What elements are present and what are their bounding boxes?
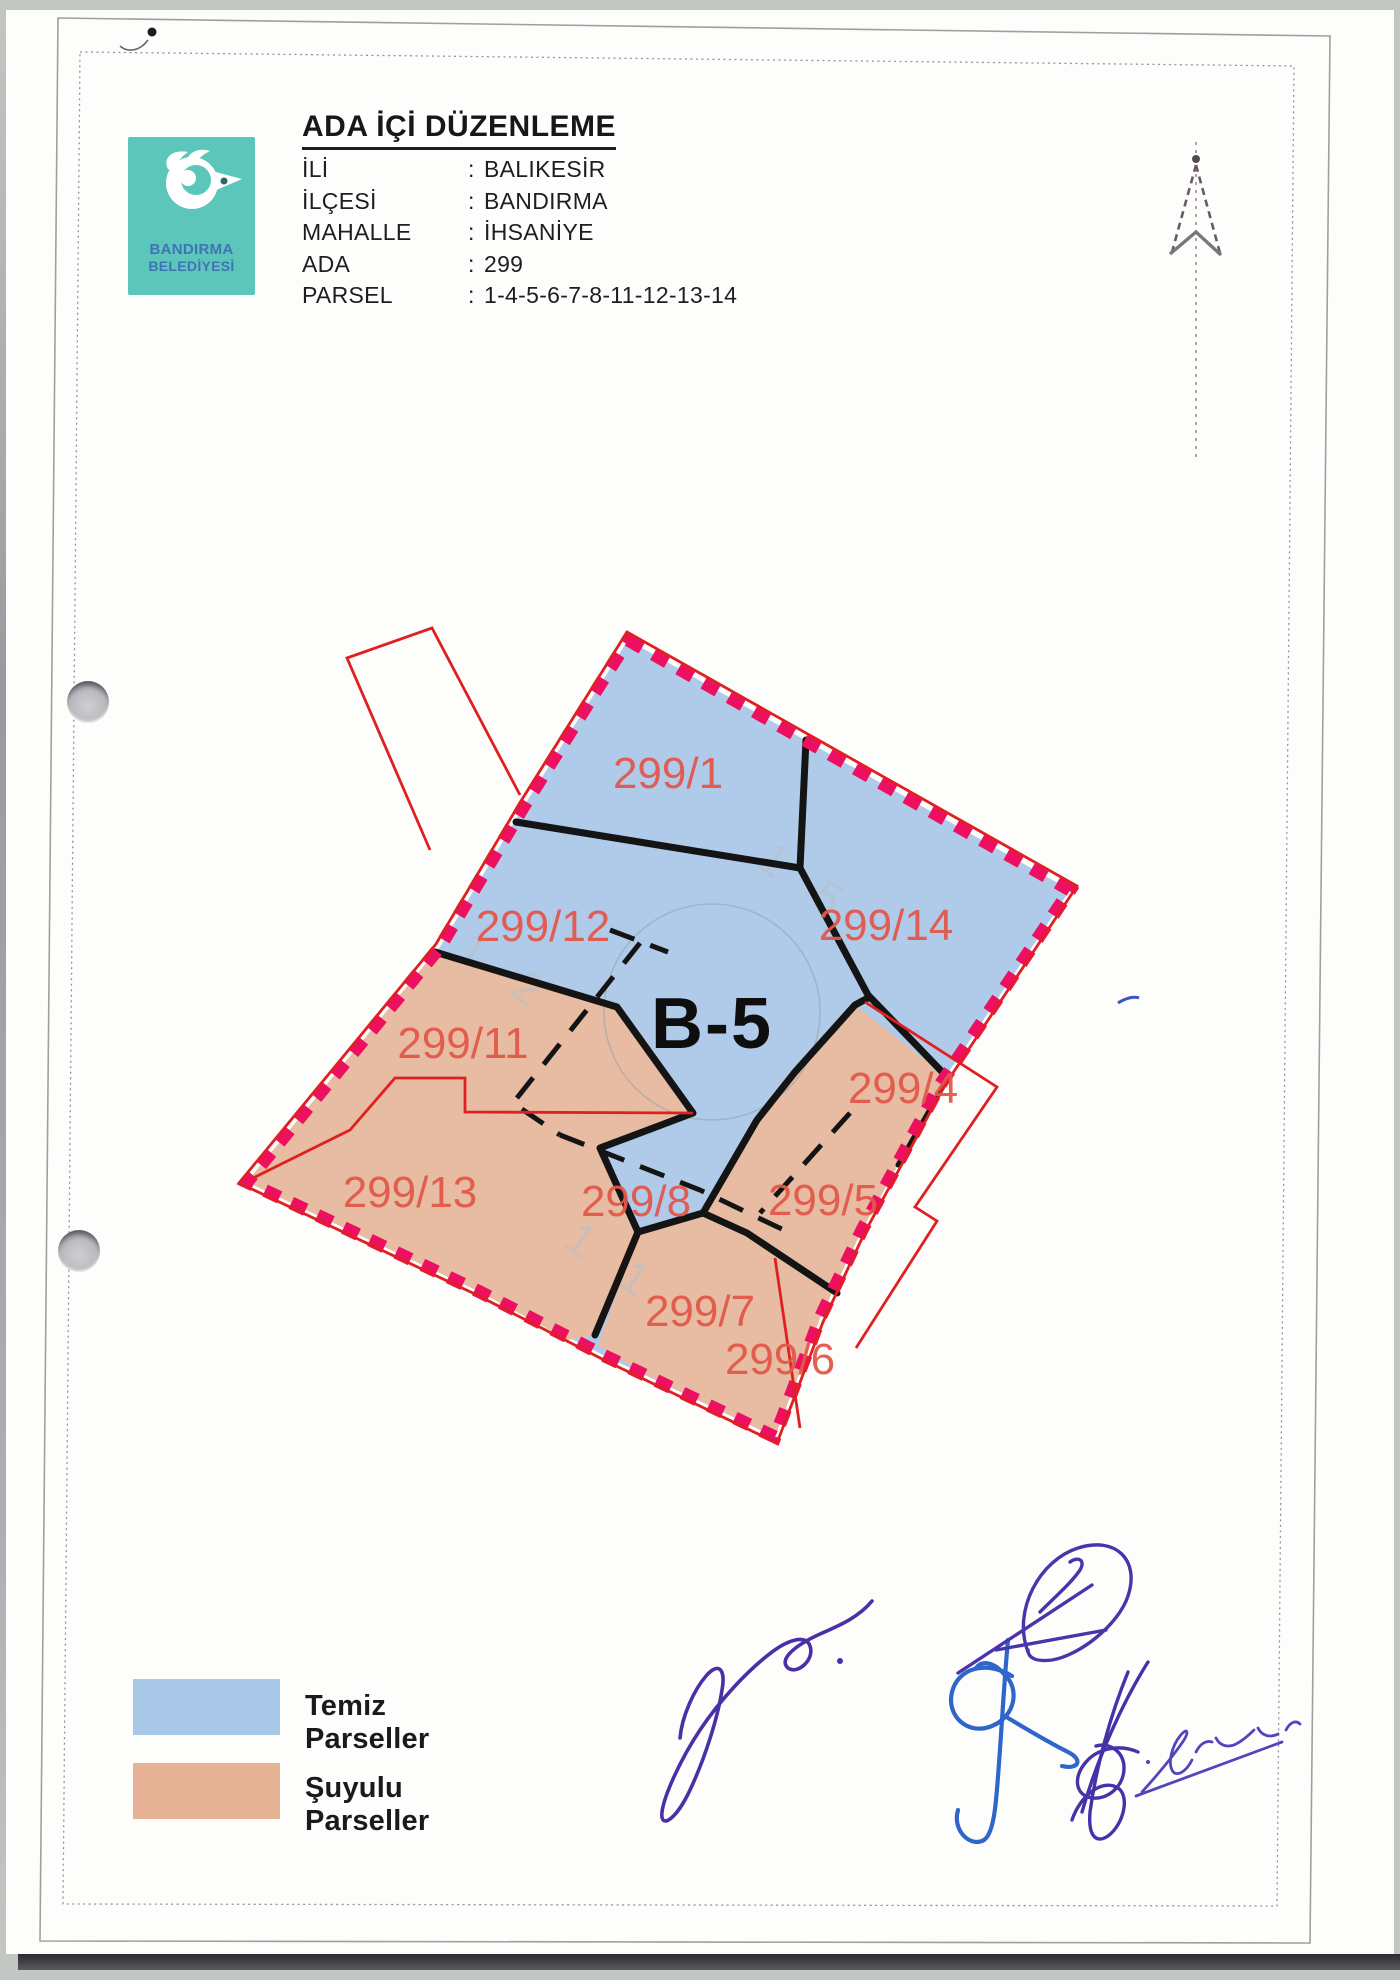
parcel-label-299-4: 299/4 [848,1064,958,1113]
parcel-label-299-6: 299/6 [725,1335,835,1384]
signature-stroke [1072,1662,1148,1839]
legend-swatch-clean [133,1679,280,1735]
signature-stroke [662,1601,872,1821]
legend-swatch-shared [133,1763,280,1819]
signature-stroke [958,1545,1131,1673]
north-arrow-icon [1170,142,1221,462]
parcel-label-299-5: 299/5 [768,1176,878,1225]
signature-stroke [1136,1722,1300,1796]
block-label-b5: B-5 [651,984,773,1064]
parcel-label-299-12: 299/12 [476,902,611,951]
parcel-label-299-14: 299/14 [819,901,954,950]
parcel-label-299-13: 299/13 [343,1168,478,1217]
signatures [662,1545,1300,1842]
parcel-label-299-11: 299/11 [397,1019,528,1068]
parcel-label-299-1: 299/1 [613,749,723,798]
pen-mark [1118,997,1139,1003]
cadastral-map: 1 5 1 1 1 2 [239,628,1139,1443]
signature-stroke [951,1640,1077,1842]
legend-label-shared: Şuyulu Parseller [305,1772,429,1838]
ink-blot [120,28,157,51]
hole-punch [58,1230,100,1272]
parcel-label-299-7: 299/7 [645,1287,755,1336]
legend-label-clean: Temiz Parseller [305,1690,429,1756]
parcel-label-299-8: 299/8 [581,1177,691,1226]
hole-punch [67,681,109,723]
